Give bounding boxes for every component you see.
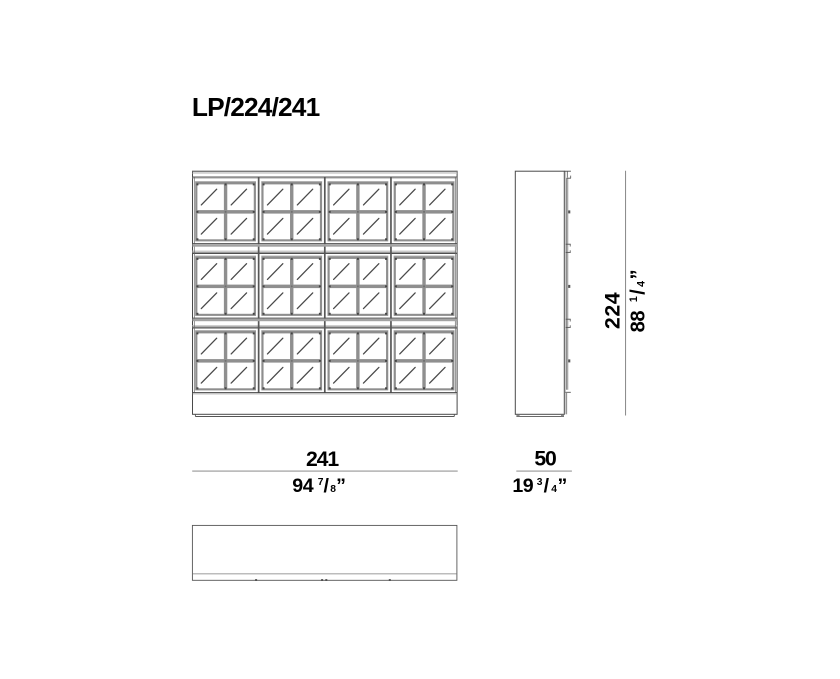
svg-text:LP/224/241: LP/224/241 bbox=[192, 92, 320, 122]
svg-text:50: 50 bbox=[534, 448, 556, 471]
svg-text:947/8”: 947/8” bbox=[292, 475, 345, 497]
svg-text:241: 241 bbox=[306, 448, 339, 471]
svg-text:881/4”: 881/4” bbox=[628, 270, 650, 333]
svg-text:193/4”: 193/4” bbox=[512, 475, 566, 497]
svg-text:224: 224 bbox=[601, 292, 625, 329]
